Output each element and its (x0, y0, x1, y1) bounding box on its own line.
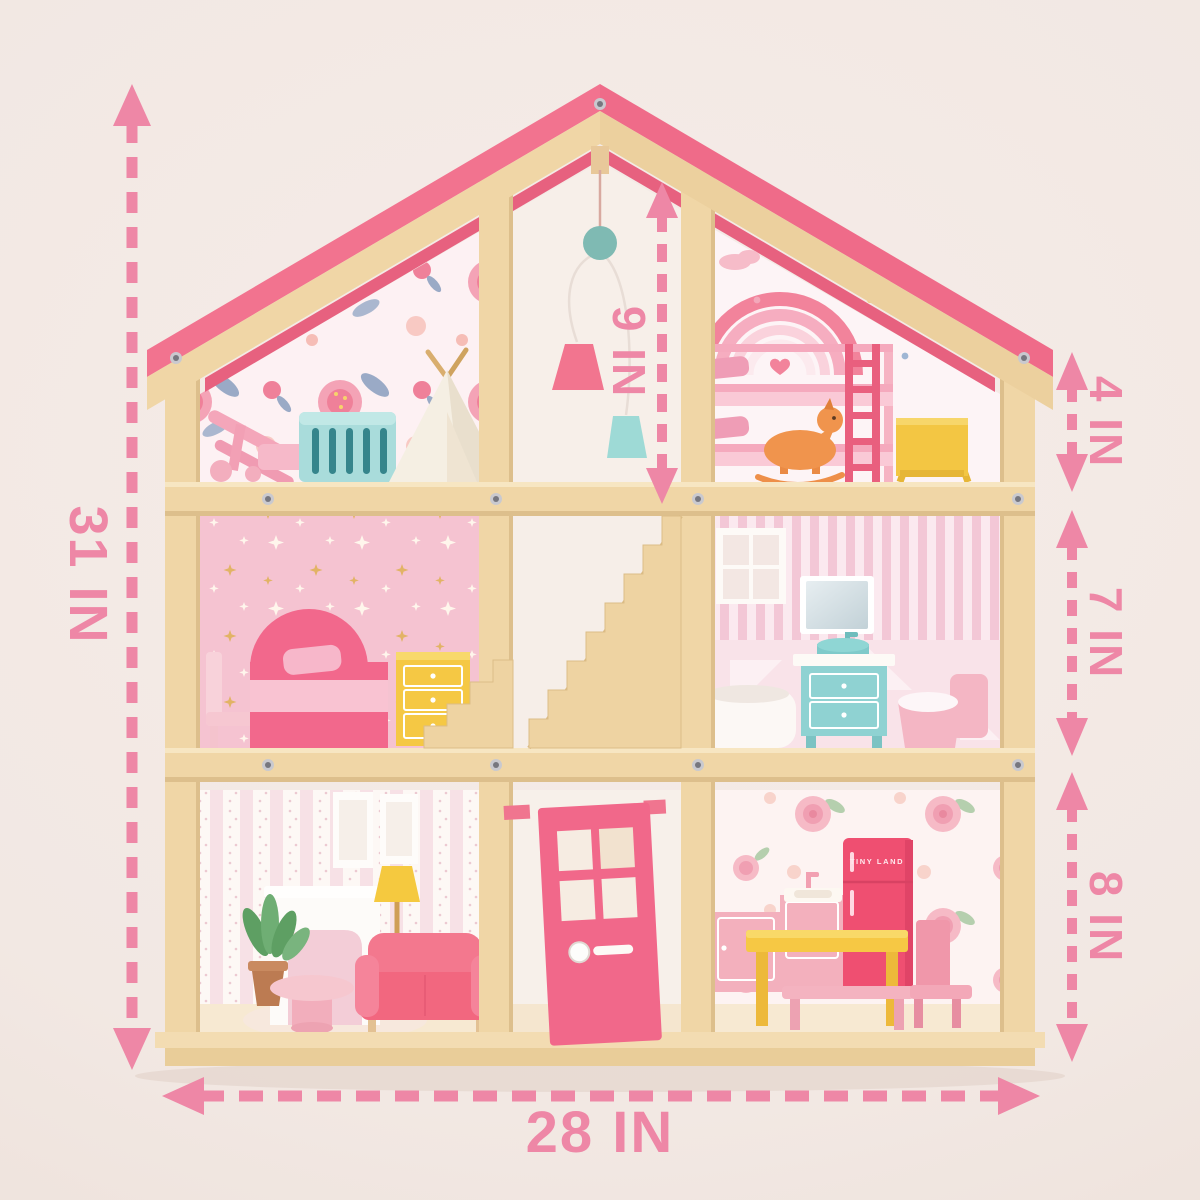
attic-floor-shade (165, 511, 1035, 516)
sofa (355, 933, 495, 1032)
mobile-hanger (591, 146, 609, 174)
total-height-arrow (113, 84, 151, 1070)
door-pane (557, 829, 593, 871)
door-pane (599, 827, 635, 869)
dim-label-attic-height: 4 IN (1083, 376, 1129, 468)
left-wall-edge (196, 350, 200, 1032)
screw (262, 759, 274, 771)
crib (299, 412, 396, 482)
window-decal (716, 528, 786, 604)
mobile-disc (583, 226, 617, 260)
screw (1012, 759, 1024, 771)
door-knob (569, 942, 590, 963)
second-floor-slab (165, 748, 1035, 782)
attic-floor-highlight (165, 482, 1035, 487)
easel (896, 418, 968, 482)
right-wall (1000, 350, 1035, 1032)
screw (692, 759, 704, 771)
center-left-post (479, 172, 513, 1032)
door-hinge-block-left (504, 805, 531, 820)
screw (262, 493, 274, 505)
screw (490, 759, 502, 771)
screw (1012, 493, 1024, 505)
dim-label-middle-floor-height: 7 IN (1083, 587, 1129, 679)
screw (170, 352, 182, 364)
second-floor-highlight (165, 748, 1035, 753)
left-wall (165, 350, 200, 1032)
attic-floor-slab (165, 482, 1035, 516)
fridge: TINY LAND (843, 838, 913, 992)
dollhouse-dimension-diagram: TINY LAND (0, 0, 1200, 1200)
screw (1018, 352, 1030, 364)
dim-label-total-width: 28 IN (526, 1104, 675, 1162)
dim-label-total-height: 31 IN (61, 505, 115, 644)
screw (594, 98, 606, 110)
dollhouse-illustration: TINY LAND (0, 0, 1200, 1200)
screw (490, 493, 502, 505)
screw (692, 493, 704, 505)
dim-label-ground-floor-height: 8 IN (1083, 871, 1129, 963)
door-pane (601, 877, 637, 919)
center-right-post-edge (711, 170, 715, 1032)
door-pane (560, 879, 596, 921)
second-floor-shade (165, 777, 1035, 782)
dim-label-attic-interior: 9 IN (606, 306, 652, 398)
base-slab-front (165, 1048, 1035, 1066)
center-left-post-edge (509, 172, 513, 1032)
fridge-brand-text: TINY LAND (850, 857, 904, 866)
mirror (800, 576, 874, 634)
center-right-post (681, 170, 715, 1032)
right-wall-edge (1000, 350, 1004, 1032)
